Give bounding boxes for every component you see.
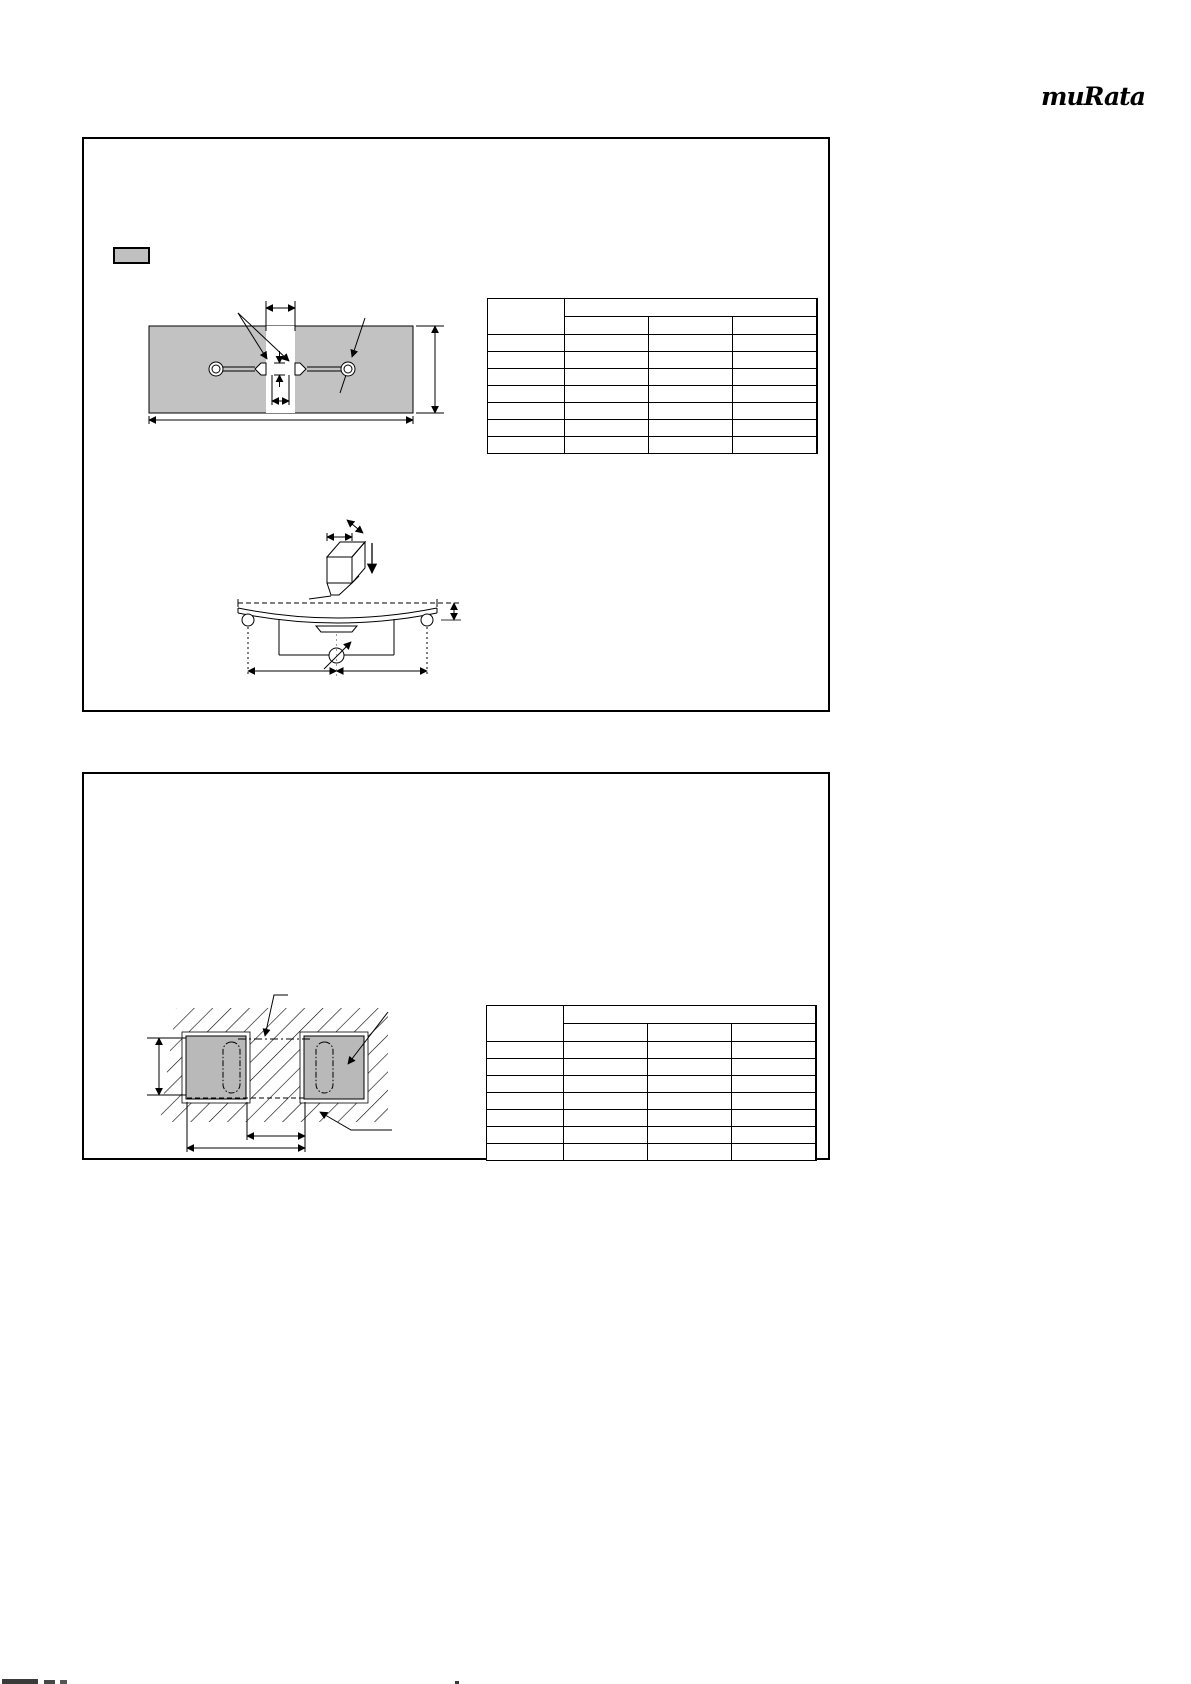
right-roller [421,614,433,626]
table-row [488,386,817,403]
chip [316,626,357,632]
table-row [487,1042,816,1059]
table-row [488,352,817,369]
land-pattern-diagram [128,295,468,430]
pressurizing-jig [309,542,365,599]
group-header-cell [565,299,817,317]
bending-test-diagram [205,495,475,685]
table-header-row [487,1006,816,1024]
table-header-row [488,299,817,317]
table-row [487,1059,816,1076]
spec-table-1 [487,298,818,454]
board-width-dimension [149,416,413,424]
group-header-cell [564,1006,816,1024]
table-row [488,369,817,386]
table-row [488,420,817,437]
resist-slit [266,326,295,413]
clipped-footer-text-fragment [60,1680,67,1684]
clipped-footer-text-fragment [2,1679,38,1684]
board-height-dimension [416,326,444,413]
table-row [487,1093,816,1110]
table-row [488,437,817,454]
right-eyelet [341,362,355,376]
left-chip [182,1032,250,1103]
table-row [487,1144,816,1161]
initial-position-line [238,599,460,607]
corner-cell [488,299,565,335]
spec-table-2 [486,1005,817,1161]
datasheet-page: muRata [0,0,1191,1684]
legend-swatch [113,247,150,264]
table-row [488,335,817,352]
right-chip [300,1032,368,1103]
bent-substrate [238,608,437,623]
left-eyelet [209,362,223,376]
table-row [487,1110,816,1127]
jig-width-dimension [327,533,352,541]
left-roller [242,614,254,626]
clipped-footer-text-fragment [44,1680,55,1684]
murata-logo: muRata [1041,82,1131,112]
deflection-dimension [441,603,461,620]
corner-cell [487,1006,564,1042]
embedded-chips-diagram [130,980,410,1150]
table-row [488,403,817,420]
jig-depth-dimension [347,520,363,533]
table-row [487,1127,816,1144]
table-row [487,1076,816,1093]
